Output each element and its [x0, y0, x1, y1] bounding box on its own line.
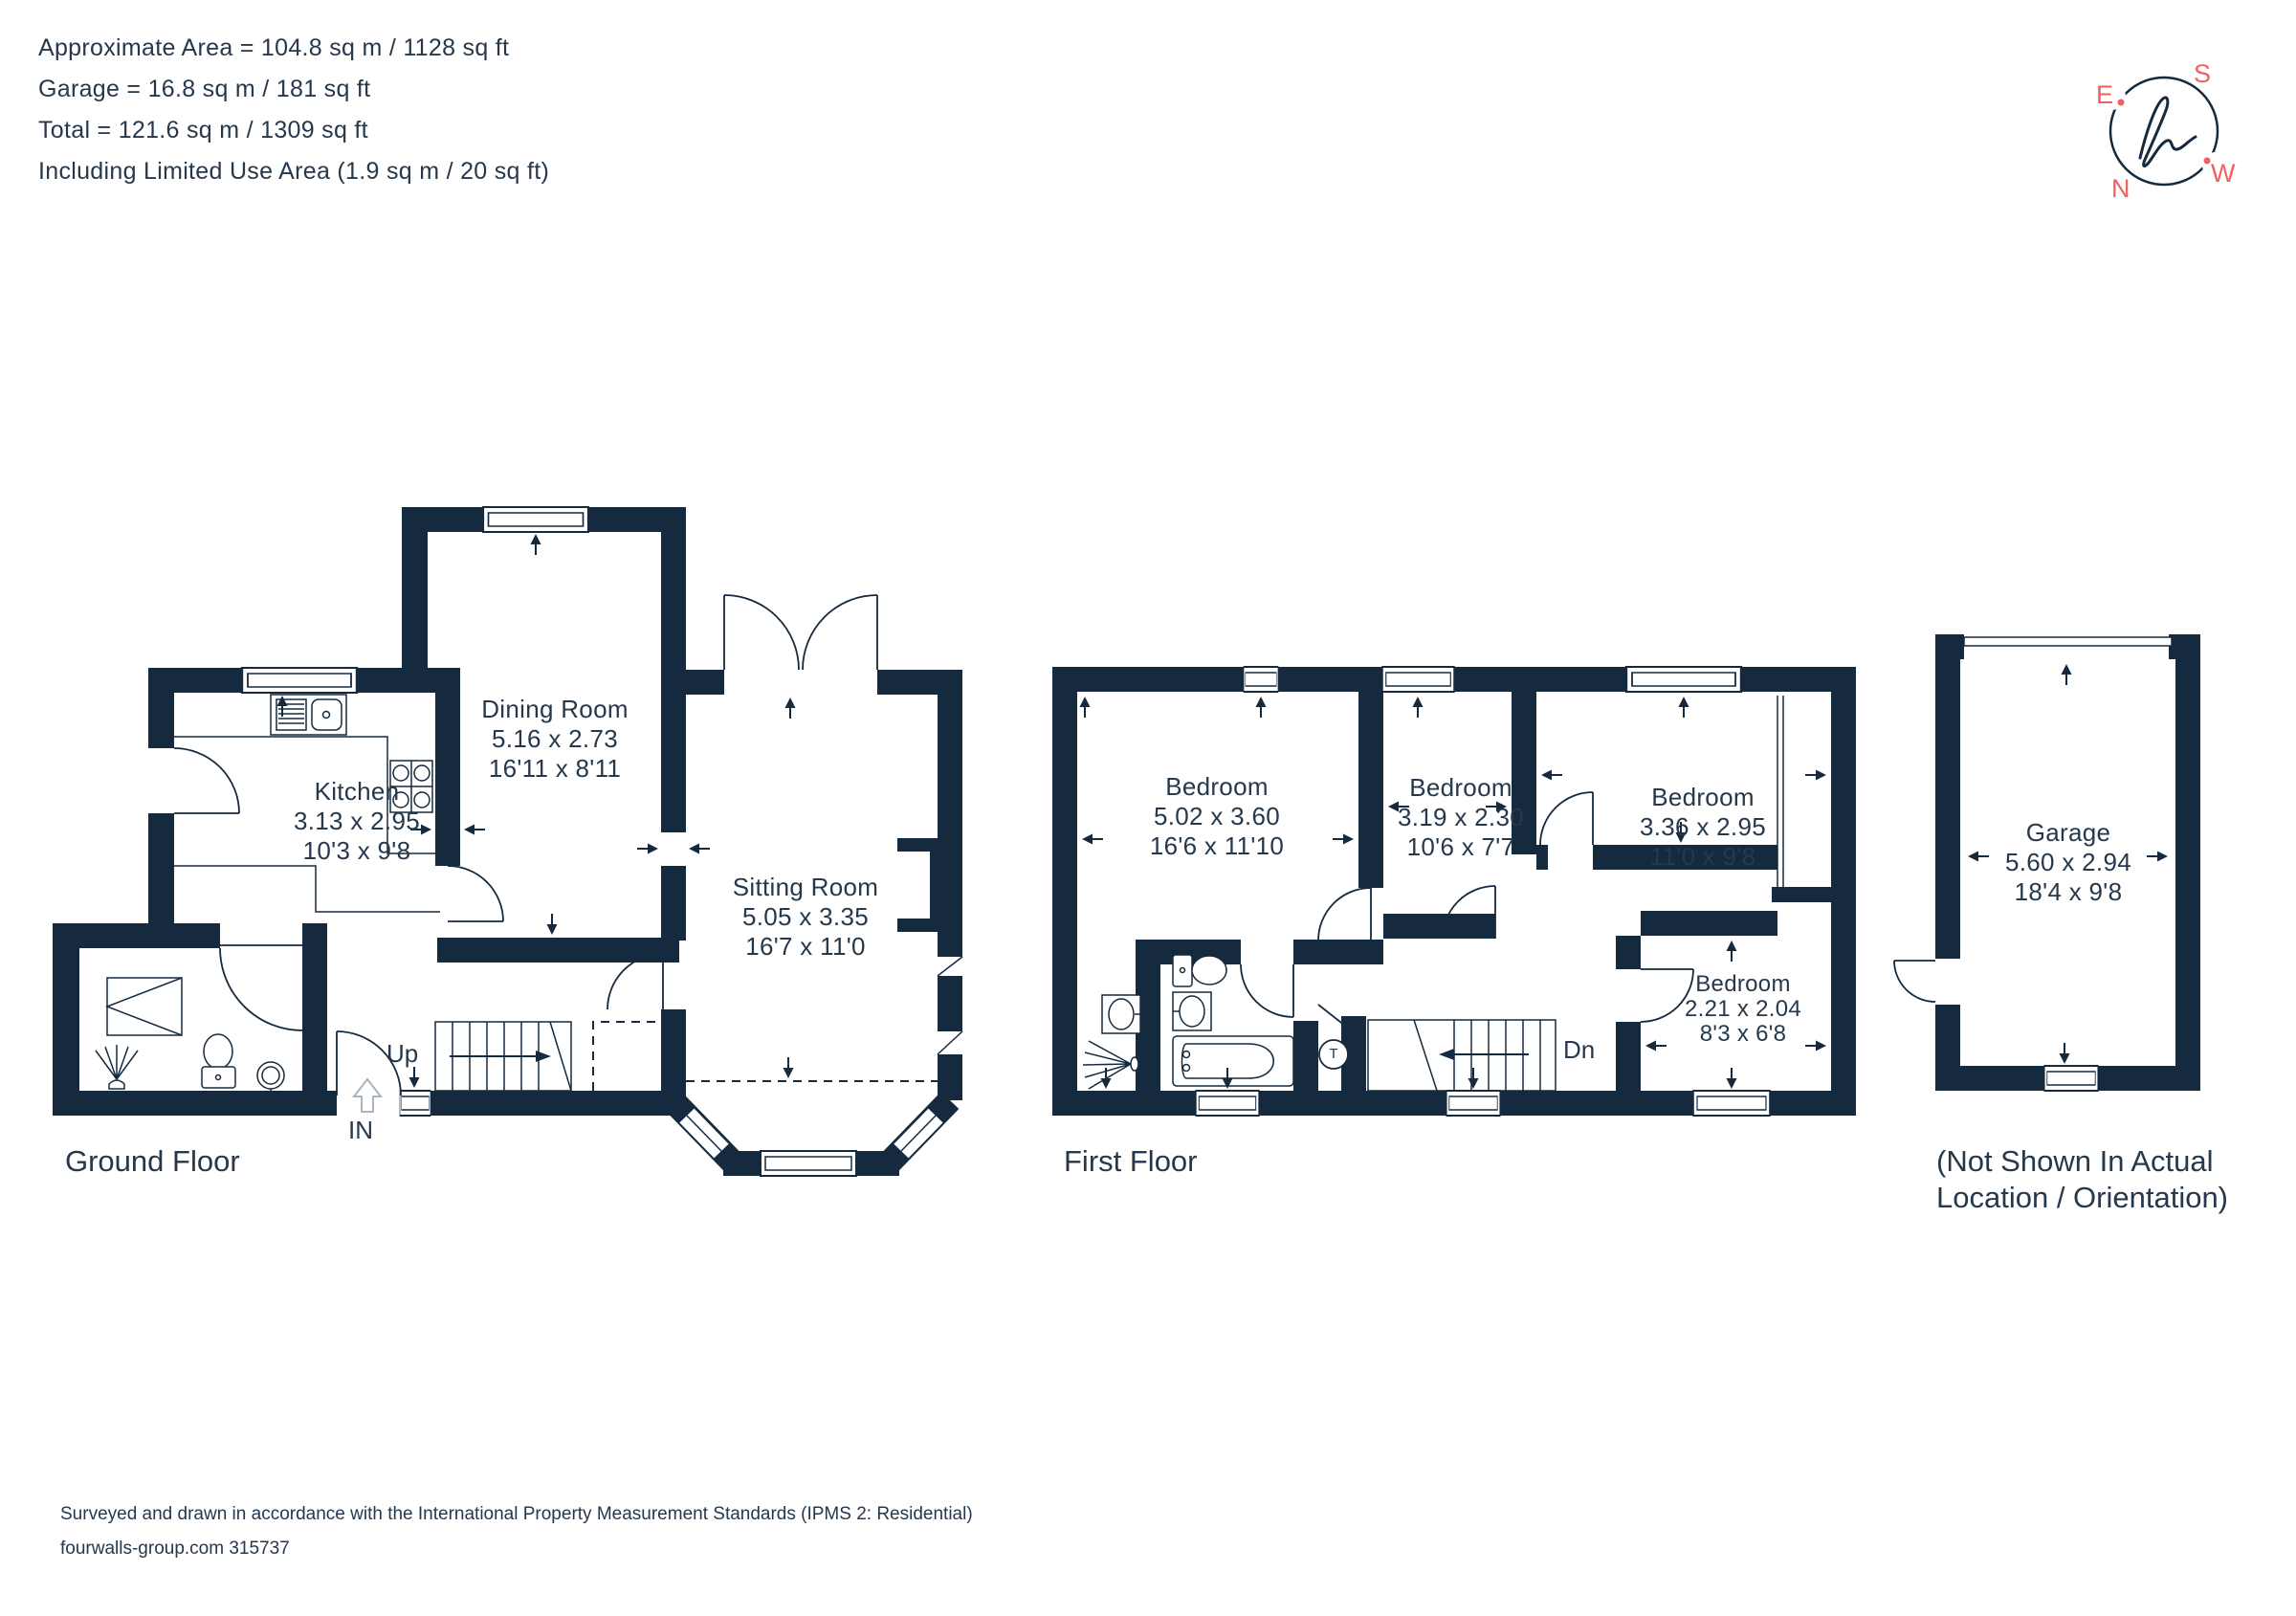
- dining-door: [448, 866, 503, 921]
- bed2-window: [1382, 667, 1454, 692]
- limited-use-line: Including Limited Use Area (1.9 sq m / 2…: [38, 158, 549, 186]
- bed4-window: [1693, 1091, 1770, 1116]
- garage-area-line: Garage = 16.8 sq m / 181 sq ft: [38, 76, 370, 103]
- garage-door: [1964, 637, 2172, 646]
- ground-floor-plan: [53, 507, 962, 1176]
- room-metric: 3.36 x 2.95: [1578, 812, 1827, 842]
- garage-note-line1: (Not Shown In Actual: [1936, 1144, 2214, 1179]
- approximate-area-line: Approximate Area = 104.8 sq m / 1128 sq …: [38, 34, 509, 62]
- ground-floor-label: Ground Floor: [65, 1144, 240, 1179]
- room-imperial: 11'0 x 9'8: [1578, 842, 1827, 872]
- bedroom2-label: Bedroom 3.19 x 2.30 10'6 x 7'7: [1336, 773, 1585, 862]
- kitchen-label: Kitchen 3.13 x 2.95 10'3 x 9'8: [232, 777, 481, 866]
- garage-window: [2044, 1066, 2098, 1091]
- room-metric: 2.21 x 2.04: [1638, 997, 1848, 1022]
- room-imperial: 10'6 x 7'7: [1336, 832, 1585, 862]
- compass-east-label: E: [2096, 80, 2113, 110]
- room-metric: 5.60 x 2.94: [1944, 848, 2193, 877]
- bed3-window: [1626, 667, 1741, 692]
- room-name: Sitting Room: [681, 873, 930, 902]
- footer-standards-line: Surveyed and drawn in accordance with th…: [60, 1504, 973, 1525]
- tank-label: T: [1326, 1046, 1341, 1062]
- ensuite-shower-icon: [1083, 1041, 1138, 1089]
- ensuite-basin: [1102, 995, 1140, 1033]
- stairs-down: [1368, 1020, 1556, 1091]
- stairs-down-label: Dn: [1563, 1035, 1595, 1065]
- french-doors: [724, 595, 877, 670]
- room-name: Bedroom: [1093, 772, 1341, 802]
- room-metric: 5.02 x 3.60: [1093, 802, 1341, 831]
- ground-walls: [53, 507, 962, 1116]
- room-metric: 3.19 x 2.30: [1336, 803, 1585, 832]
- stairs-up-label: Up: [386, 1039, 418, 1069]
- bed1-door: [1318, 888, 1371, 941]
- wc-toilet: [202, 1034, 235, 1088]
- shower-head-icon: [96, 1045, 138, 1089]
- room-imperial: 8'3 x 6'8: [1638, 1022, 1848, 1047]
- dining-room-label: Dining Room 5.16 x 2.73 16'11 x 8'11: [430, 695, 679, 784]
- garage-label: Garage 5.60 x 2.94 18'4 x 9'8: [1944, 818, 2193, 907]
- footer-website-line: fourwalls-group.com 315737: [60, 1539, 290, 1560]
- compass-west-dot: [2204, 158, 2211, 165]
- wc-basin: [257, 1062, 284, 1095]
- room-name: Garage: [1944, 818, 2193, 848]
- total-area-line: Total = 121.6 sq m / 1309 sq ft: [38, 117, 368, 144]
- first-floor-plan: [1052, 667, 1856, 1116]
- compass: [2099, 77, 2229, 185]
- room-name: Bedroom: [1578, 783, 1827, 812]
- bedroom3-label: Bedroom 3.36 x 2.95 11'0 x 9'8: [1578, 783, 1827, 872]
- understairs-dashed-line: [593, 1022, 661, 1091]
- wc-door: [220, 945, 302, 1030]
- room-name: Bedroom: [1638, 972, 1848, 997]
- compass-east-dot: [2118, 100, 2125, 106]
- first-floor-label: First Floor: [1064, 1144, 1198, 1179]
- room-name: Dining Room: [430, 695, 679, 724]
- floorplan-page: Approximate Area = 104.8 sq m / 1128 sq …: [0, 0, 2296, 1616]
- airing-cupboard-door: [1318, 1005, 1345, 1026]
- bathroom-basin: [1173, 992, 1211, 1030]
- shower-tray: [107, 978, 182, 1035]
- room-metric: 5.05 x 3.35: [681, 902, 930, 932]
- garage-side-door: [1894, 961, 1935, 1002]
- brand-h-logo-icon: [2140, 98, 2196, 166]
- room-name: Kitchen: [232, 777, 481, 807]
- room-metric: 5.16 x 2.73: [430, 724, 679, 754]
- compass-north-label: N: [2111, 174, 2130, 204]
- kitchen-window: [242, 668, 357, 693]
- bed1-window: [1244, 667, 1278, 692]
- room-name: Bedroom: [1336, 773, 1585, 803]
- landing-window: [1446, 1091, 1500, 1116]
- room-metric: 3.13 x 2.95: [232, 807, 481, 836]
- compass-south-label: S: [2194, 59, 2211, 89]
- entrance-label: IN: [348, 1116, 373, 1145]
- compass-west-label: W: [2211, 159, 2235, 188]
- stairs-up: [435, 1022, 571, 1091]
- ff-toilet: [1173, 955, 1226, 986]
- room-imperial: 16'6 x 11'10: [1093, 831, 1341, 861]
- room-imperial: 16'7 x 11'0: [681, 932, 930, 962]
- room-imperial: 18'4 x 9'8: [1944, 877, 2193, 907]
- kitchen-door: [174, 748, 239, 813]
- sitting-room-label: Sitting Room 5.05 x 3.35 16'7 x 11'0: [681, 873, 930, 962]
- bedroom4-label: Bedroom 2.21 x 2.04 8'3 x 6'8: [1638, 972, 1848, 1047]
- bay-window: [673, 1081, 950, 1176]
- bedroom1-label: Bedroom 5.02 x 3.60 16'6 x 11'10: [1093, 772, 1341, 861]
- hall-window: [400, 1091, 430, 1116]
- entrance-arrow-icon: [354, 1079, 381, 1112]
- bathroom-window: [1196, 1091, 1259, 1116]
- dining-window: [483, 507, 588, 532]
- bathroom-door: [1241, 964, 1293, 1017]
- room-imperial: 10'3 x 9'8: [232, 836, 481, 866]
- bath: [1173, 1036, 1293, 1086]
- garage-note-line2: Location / Orientation): [1936, 1181, 2228, 1215]
